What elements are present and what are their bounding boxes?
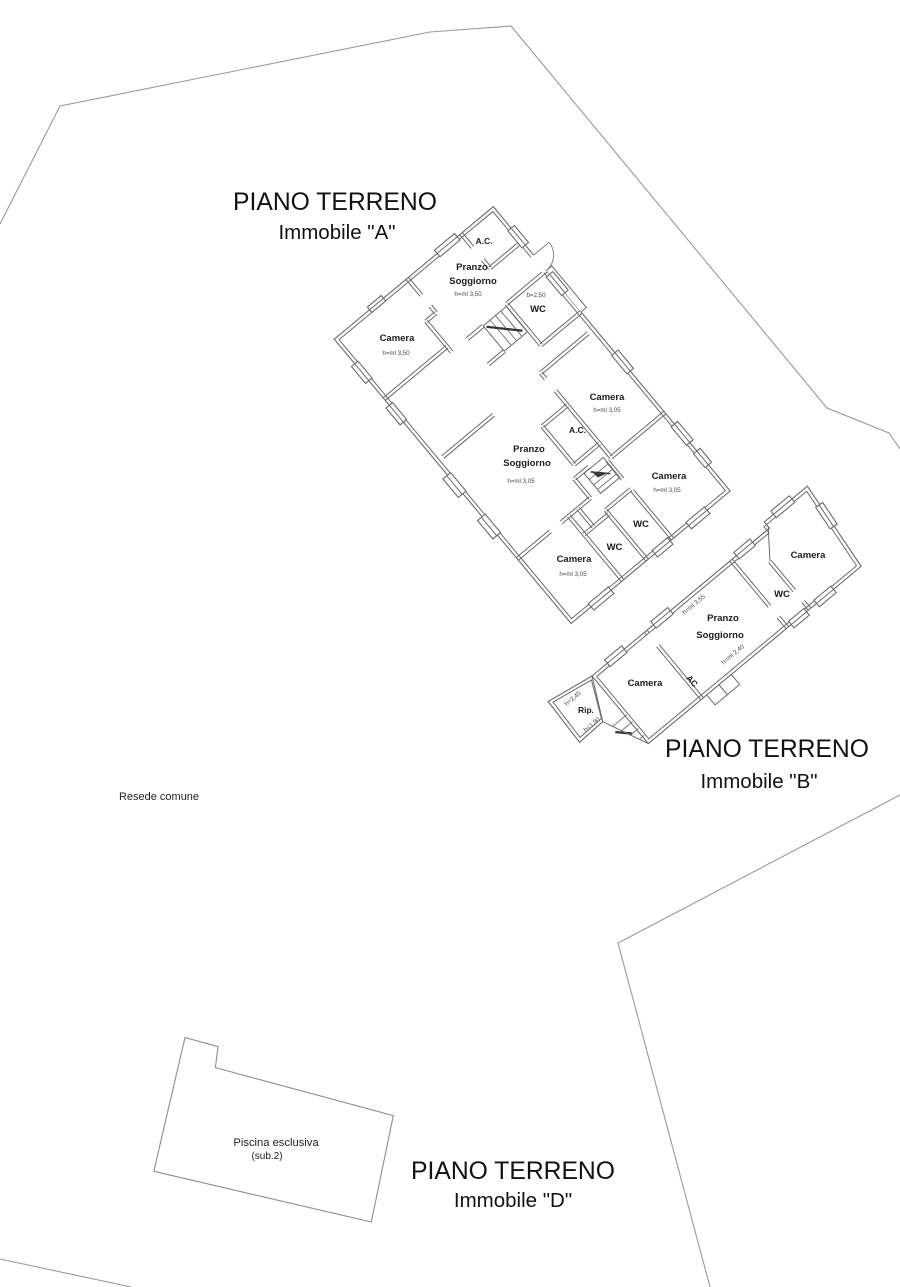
svg-text:Pranzo: Pranzo — [513, 444, 545, 455]
svg-text:WC: WC — [633, 519, 649, 530]
svg-text:Pranzo: Pranzo — [456, 262, 488, 273]
svg-text:Camera: Camera — [628, 678, 664, 689]
svg-text:A.C.: A.C. — [569, 425, 586, 435]
svg-text:WC: WC — [607, 542, 623, 553]
svg-text:Soggiorno: Soggiorno — [696, 630, 744, 641]
svg-text:h=ml 3,05: h=ml 3,05 — [559, 571, 587, 578]
svg-text:PIANO TERRENO: PIANO TERRENO — [665, 736, 869, 763]
svg-text:Soggiorno: Soggiorno — [449, 276, 497, 287]
svg-text:h=ml 3,05: h=ml 3,05 — [507, 478, 535, 485]
svg-text:WC: WC — [774, 589, 790, 600]
svg-text:PIANO TERRENO: PIANO TERRENO — [411, 1158, 615, 1185]
svg-text:Rip.: Rip. — [578, 705, 594, 715]
svg-text:h=ml 3,05: h=ml 3,05 — [593, 407, 621, 414]
svg-text:Pranzo: Pranzo — [707, 613, 739, 624]
svg-text:h=ml 3,50: h=ml 3,50 — [454, 291, 482, 298]
svg-text:h=ml 3,50: h=ml 3,50 — [382, 350, 410, 357]
svg-text:A.C.: A.C. — [476, 236, 493, 246]
svg-text:Camera: Camera — [590, 392, 626, 403]
svg-text:Immobile "D": Immobile "D" — [454, 1189, 572, 1212]
svg-text:Camera: Camera — [652, 471, 688, 482]
svg-text:h=ml 3,05: h=ml 3,05 — [653, 487, 681, 494]
svg-text:Camera: Camera — [791, 550, 827, 561]
svg-text:Camera: Camera — [557, 554, 593, 565]
svg-text:Immobile "A": Immobile "A" — [278, 221, 395, 244]
svg-text:b=2,50: b=2,50 — [526, 292, 546, 299]
svg-text:Piscina esclusiva: Piscina esclusiva — [233, 1137, 319, 1149]
svg-text:Immobile "B": Immobile "B" — [700, 770, 817, 793]
svg-text:(sub.2): (sub.2) — [251, 1151, 282, 1162]
svg-text:WC: WC — [530, 304, 546, 315]
svg-text:PIANO TERRENO: PIANO TERRENO — [233, 189, 437, 216]
svg-text:Camera: Camera — [380, 333, 416, 344]
svg-text:Soggiorno: Soggiorno — [503, 458, 551, 469]
svg-text:Resede comune: Resede comune — [119, 791, 199, 803]
